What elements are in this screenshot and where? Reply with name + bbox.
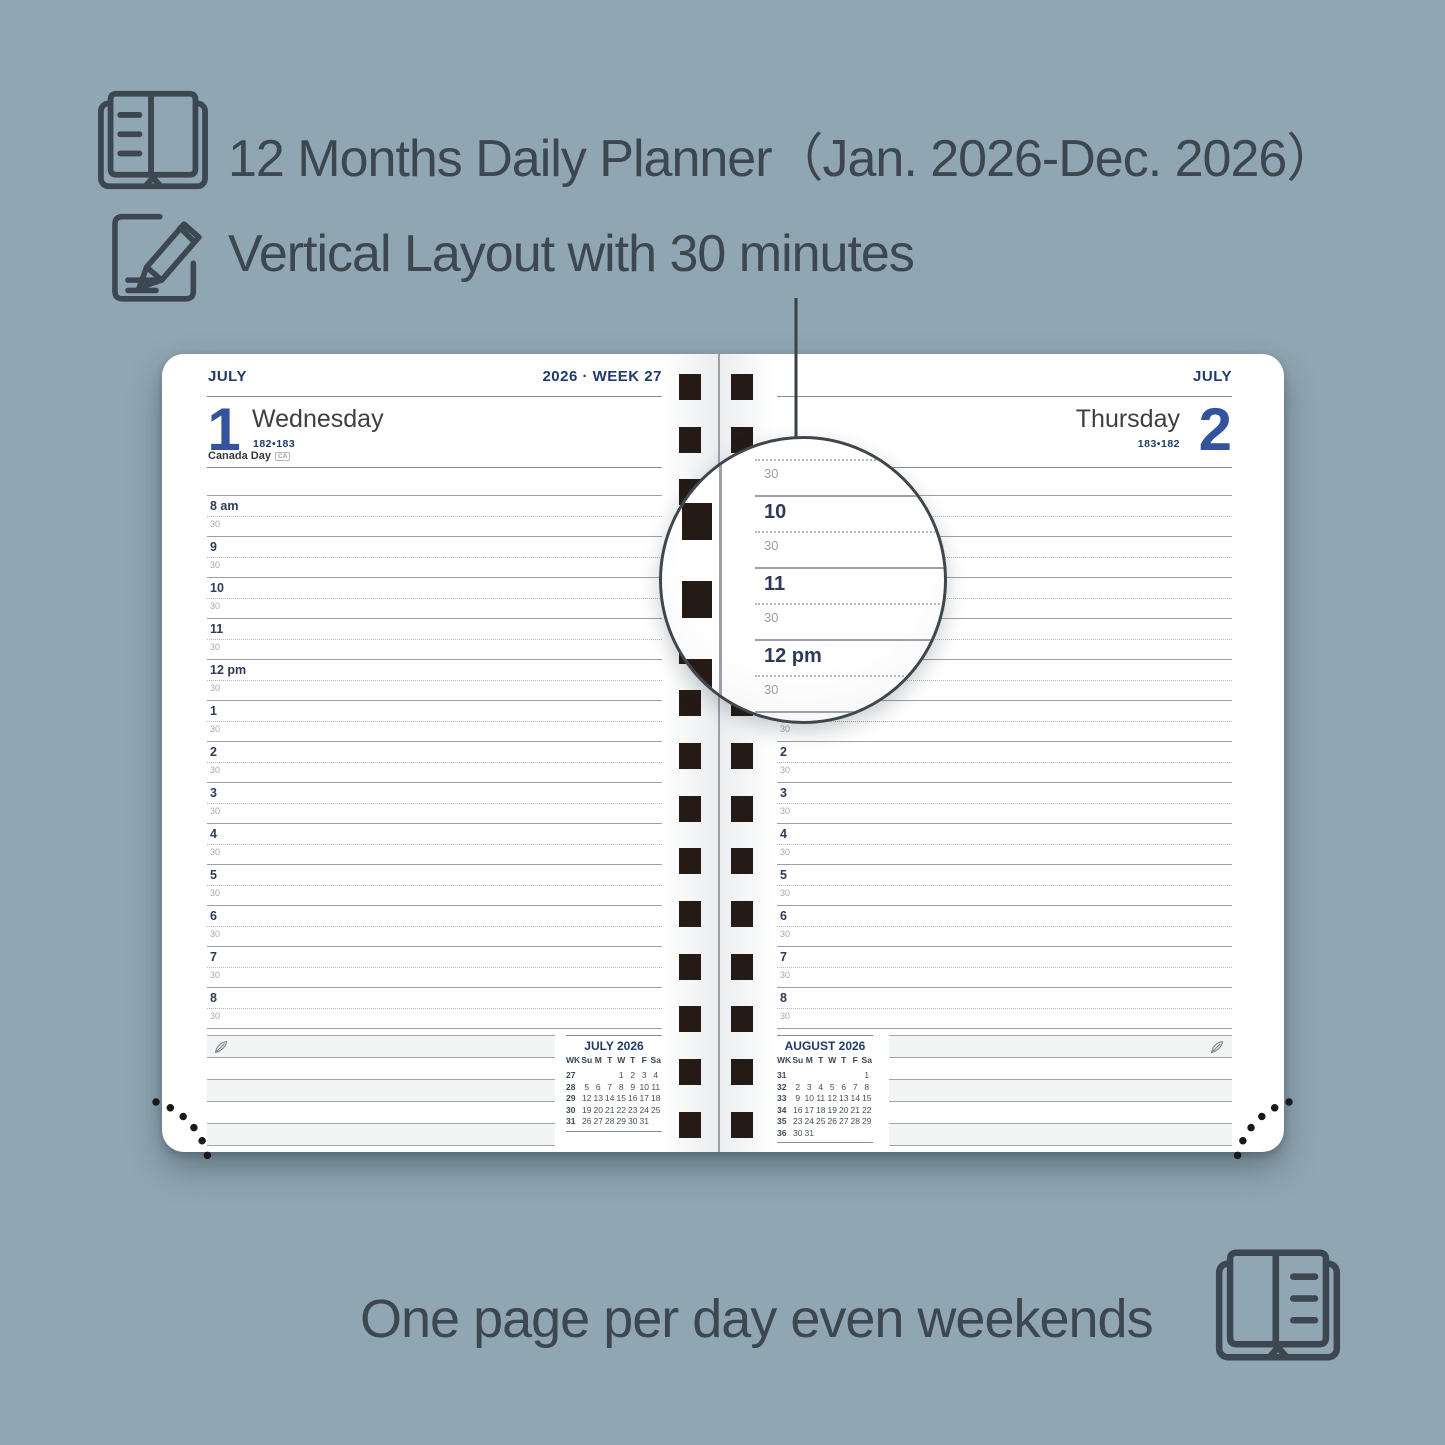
spiral-hole: [679, 901, 701, 927]
spiral-hole: [679, 1059, 701, 1085]
time-slot: 730: [207, 946, 662, 987]
open-book-icon-footer: [1212, 1244, 1344, 1371]
time-slot: 430: [777, 823, 1232, 864]
left-notes-area: [207, 1035, 555, 1146]
time-slot: 830: [777, 987, 1232, 1028]
mini-calendar-title: JULY 2026: [566, 1036, 662, 1055]
note-line: [207, 1123, 555, 1145]
mini-calendar-dates: 2712342856789101129121314151617183019202…: [566, 1070, 662, 1128]
spiral-hole: [731, 1112, 753, 1138]
spiral-hole: [679, 1006, 701, 1032]
time-slot: 630: [777, 905, 1232, 946]
magnified-spiral-hole: [682, 581, 712, 618]
time-slot: 330: [777, 782, 1232, 823]
mini-calendar-dow-row: WKSuMTWTFSa: [566, 1055, 662, 1066]
time-slot: 530: [207, 864, 662, 905]
right-notes-area: [889, 1035, 1232, 1146]
right-day-number: 2: [1188, 400, 1232, 460]
spiral-hole: [731, 374, 753, 400]
note-line: [207, 1057, 555, 1079]
time-slot: 430: [207, 823, 662, 864]
time-slot: 930: [207, 536, 662, 577]
magnified-gutter-line: [719, 439, 722, 721]
left-time-grid: 8 am309301030113012 pm301302303304305306…: [207, 495, 662, 1029]
magnified-spiral-hole: [682, 659, 712, 696]
magnified-hour-row: 11: [755, 567, 944, 603]
footer-label: One page per day even weekends: [360, 1288, 1153, 1350]
spiral-hole: [731, 954, 753, 980]
magnified-hour-row: 12 pm: [755, 639, 944, 675]
spiral-hole: [679, 848, 701, 874]
magnified-half-hour-row: 30: [755, 675, 944, 711]
note-line: [207, 1101, 555, 1123]
year-week-label: 2026 · WEEK 27: [207, 368, 662, 385]
mini-calendar-title: AUGUST 2026: [777, 1036, 873, 1055]
note-line: [889, 1079, 1232, 1101]
spiral-hole: [731, 1059, 753, 1085]
note-line: [889, 1057, 1232, 1079]
product-infographic: 12 Months Daily Planner（Jan. 2026-Dec. 2…: [0, 0, 1445, 1445]
spiral-hole: [679, 796, 701, 822]
spiral-hole: [731, 743, 753, 769]
pencil-note-icon: [100, 198, 212, 315]
time-slot: 730: [777, 946, 1232, 987]
time-slot: 1030: [207, 577, 662, 618]
mini-calendar-july: JULY 2026 WKSuMTWTFSa 271234285678910112…: [566, 1035, 662, 1132]
time-slot: 230: [207, 741, 662, 782]
spiral-hole: [731, 1006, 753, 1032]
magnified-half-hour-row: 30: [755, 459, 944, 495]
magnified-half-hour-row: 30: [755, 531, 944, 567]
magnified-time-slots: 301030113012 pm301: [755, 459, 944, 724]
time-slot: 12 pm30: [207, 659, 662, 700]
magnifier-circle: 301030113012 pm301: [659, 436, 947, 724]
magnified-spiral-hole: [682, 436, 712, 462]
quill-icon: [213, 1039, 230, 1061]
open-book-icon: [94, 86, 212, 199]
header-rule: [207, 396, 662, 397]
mini-calendar-dow-row: WKSuMTWTFSa: [777, 1055, 873, 1066]
time-slot: 1130: [207, 618, 662, 659]
spiral-hole: [679, 374, 701, 400]
note-line: [889, 1101, 1232, 1123]
spiral-hole: [679, 743, 701, 769]
mini-calendar-dates: 3113223456783391011121314153416171819202…: [777, 1070, 873, 1139]
holiday-country-tag: CA: [275, 452, 290, 461]
time-slot: 530: [777, 864, 1232, 905]
time-slot: 830: [207, 987, 662, 1028]
right-day-name: Thursday: [777, 405, 1180, 434]
spiral-hole: [731, 901, 753, 927]
note-line: [207, 1079, 555, 1101]
spiral-hole: [731, 848, 753, 874]
feature-1-label: 12 Months Daily Planner（Jan. 2026-Dec. 2…: [228, 116, 1337, 191]
left-day-name: Wednesday: [252, 405, 384, 434]
time-slot: 630: [207, 905, 662, 946]
note-line: [889, 1123, 1232, 1145]
magnified-hour-row: 10: [755, 495, 944, 531]
magnified-spiral-hole: [682, 503, 712, 540]
spiral-hole: [679, 954, 701, 980]
header-rule: [777, 396, 1232, 397]
note-line: [207, 1035, 555, 1057]
mini-calendar-august: AUGUST 2026 WKSuMTWTFSa 3113223456783391…: [777, 1035, 873, 1143]
spiral-hole: [679, 1112, 701, 1138]
feature-2-label: Vertical Layout with 30 minutes: [228, 224, 914, 284]
left-day-of-year: 182•183: [253, 438, 295, 450]
magnified-half-hour-row: 30: [755, 603, 944, 639]
spiral-hole: [731, 796, 753, 822]
time-slot: 230: [777, 741, 1232, 782]
holiday-label: Canada DayCA: [208, 450, 290, 462]
time-slot: 130: [207, 700, 662, 741]
holiday-rule: [207, 467, 662, 468]
quill-icon: [1209, 1039, 1226, 1061]
magnified-spiral-holes: [682, 439, 712, 721]
time-slot: 8 am30: [207, 495, 662, 536]
right-month-label: JULY: [777, 368, 1232, 385]
time-slot: 330: [207, 782, 662, 823]
note-line: [889, 1035, 1232, 1057]
